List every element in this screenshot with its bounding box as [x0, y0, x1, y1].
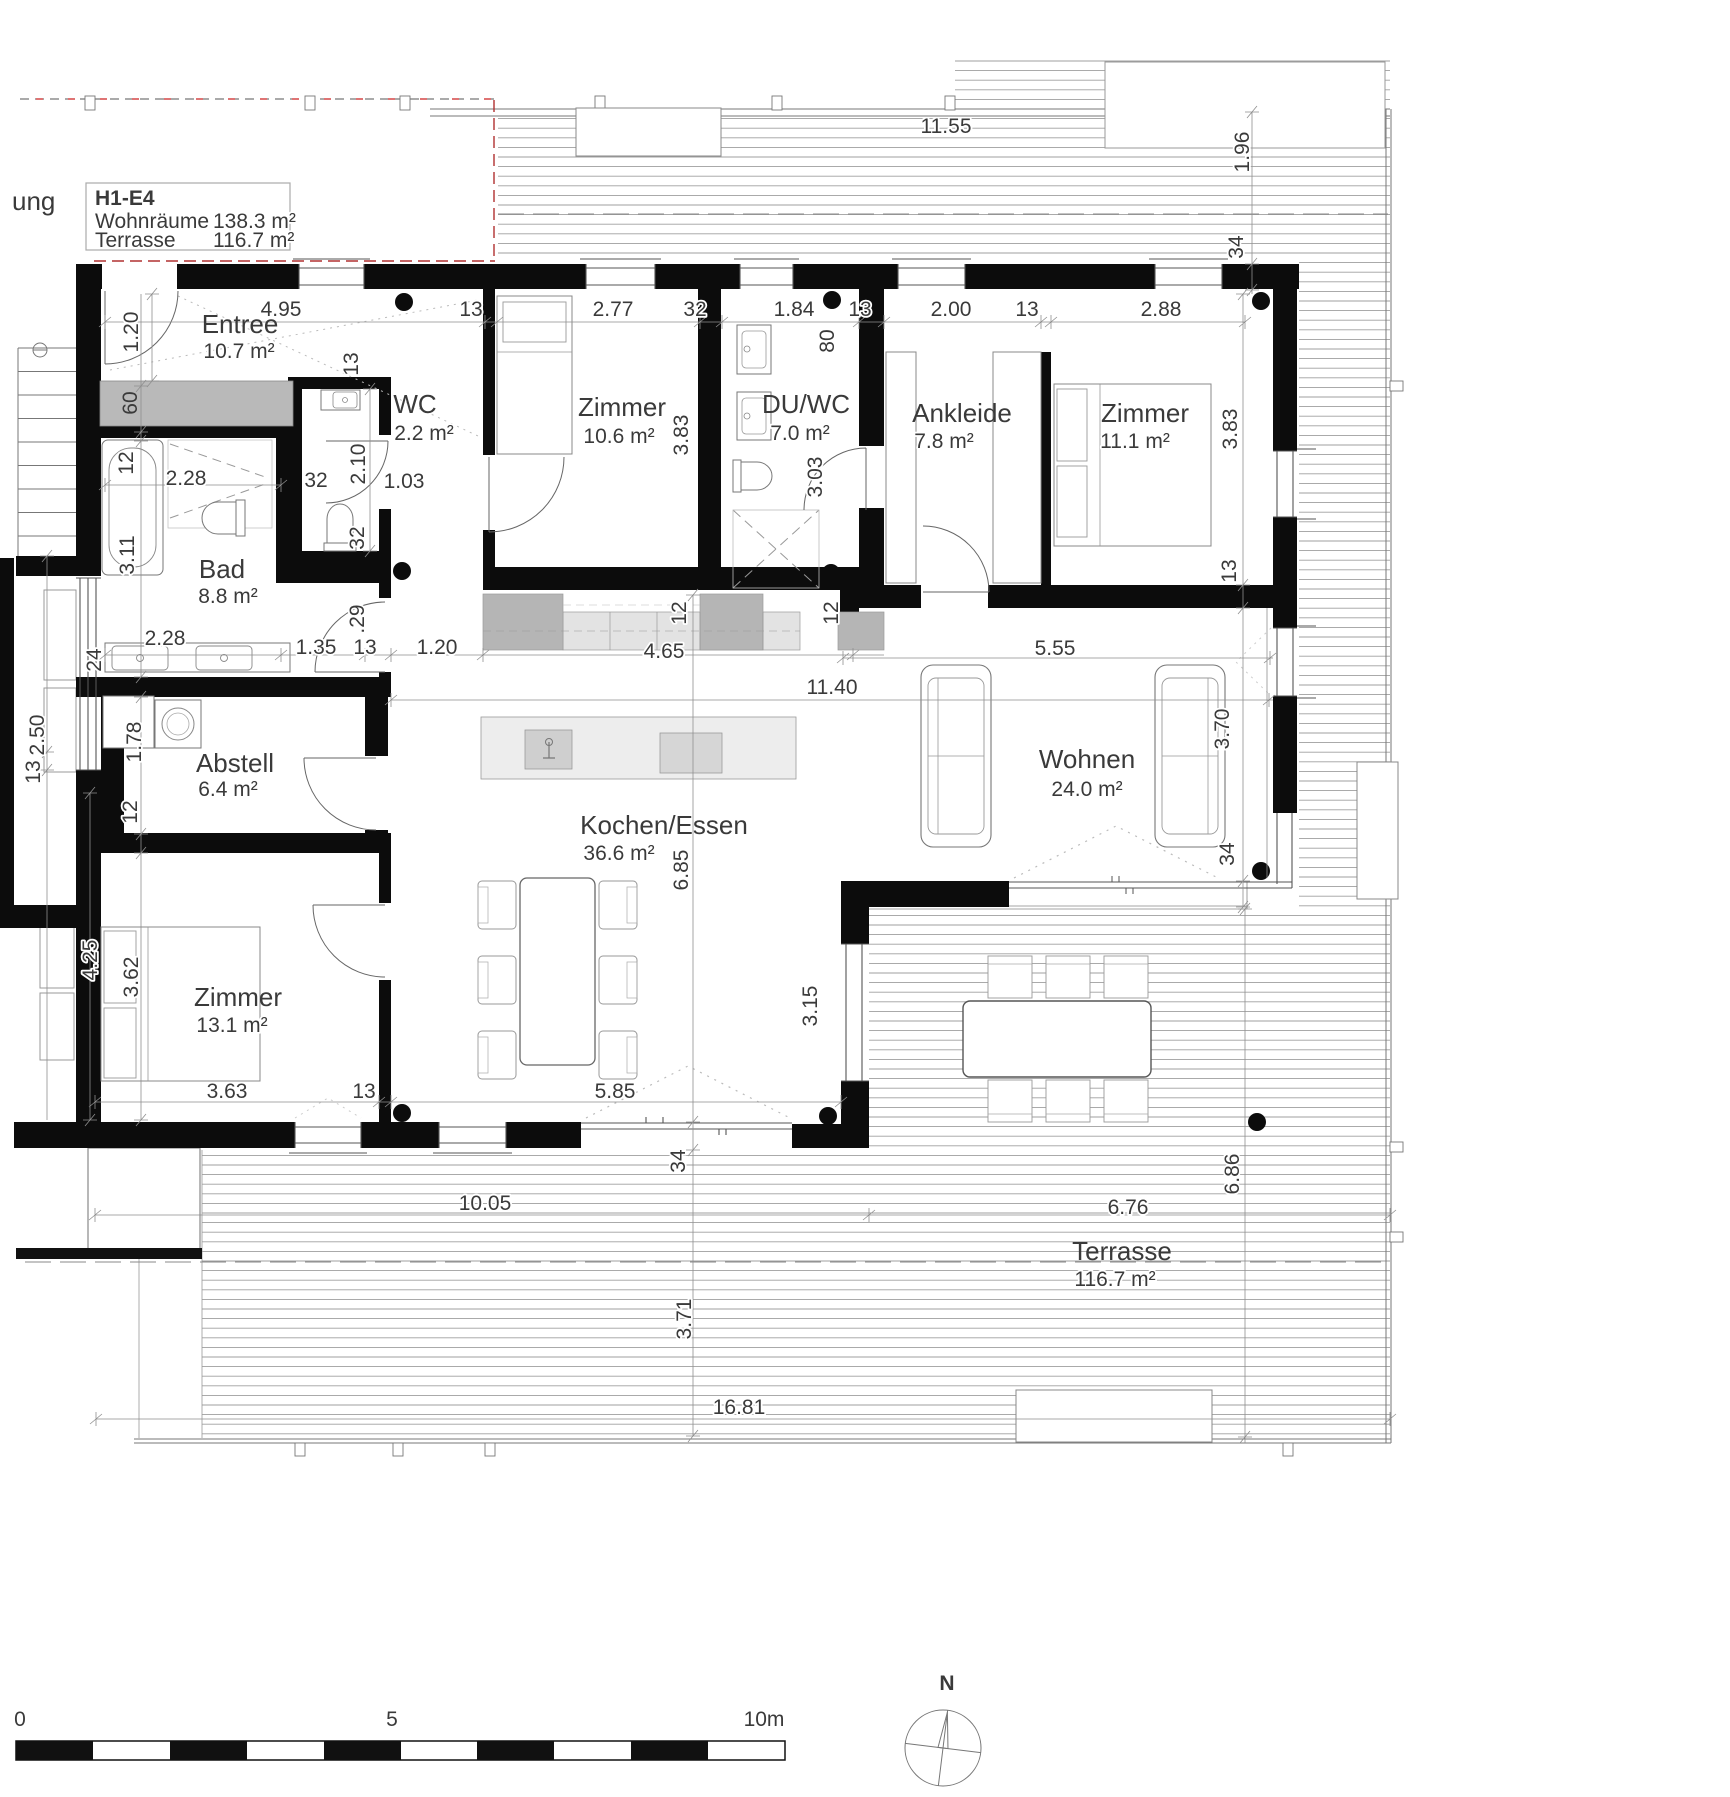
svg-text:2.77: 2.77 [593, 298, 634, 321]
svg-text:ung: ung [12, 186, 55, 216]
svg-text:Zimmer: Zimmer [1101, 398, 1189, 428]
svg-text:13: 13 [459, 298, 482, 321]
svg-text:12: 12 [820, 601, 843, 624]
svg-text:1.03: 1.03 [384, 470, 425, 493]
svg-text:3.63: 3.63 [207, 1080, 248, 1103]
svg-text:7.8 m²: 7.8 m² [914, 430, 974, 453]
svg-text:5.85: 5.85 [595, 1080, 636, 1103]
svg-text:Wohnen: Wohnen [1039, 744, 1135, 774]
svg-text:3.71: 3.71 [673, 1299, 696, 1340]
svg-text:1.84: 1.84 [774, 298, 815, 321]
svg-text:Zimmer: Zimmer [194, 982, 282, 1012]
svg-text:3.70: 3.70 [1211, 709, 1234, 750]
svg-text:34: 34 [1225, 235, 1248, 259]
svg-text:Abstell: Abstell [196, 748, 274, 778]
svg-text:2.2 m²: 2.2 m² [394, 422, 454, 445]
svg-text:32: 32 [304, 469, 327, 492]
svg-text:34: 34 [667, 1149, 690, 1173]
svg-text:12: 12 [119, 800, 142, 823]
svg-text:6.86: 6.86 [1221, 1154, 1244, 1195]
svg-text:Ankleide: Ankleide [912, 398, 1012, 428]
svg-text:24.0 m²: 24.0 m² [1051, 778, 1122, 801]
svg-text:12: 12 [668, 601, 691, 624]
svg-text:13: 13 [353, 636, 376, 659]
svg-text:12: 12 [115, 451, 138, 474]
svg-text:3.15: 3.15 [799, 986, 822, 1027]
svg-text:.29: .29 [346, 604, 369, 633]
svg-text:6.4 m²: 6.4 m² [198, 778, 258, 801]
svg-text:13: 13 [22, 760, 45, 783]
svg-text:4.25: 4.25 [79, 940, 102, 981]
svg-text:1.96: 1.96 [1231, 132, 1254, 173]
svg-text:2.88: 2.88 [1141, 298, 1182, 321]
svg-text:1.35: 1.35 [296, 636, 337, 659]
svg-text:5: 5 [386, 1708, 398, 1731]
svg-text:60: 60 [119, 391, 142, 414]
svg-text:8.8 m²: 8.8 m² [198, 585, 258, 608]
svg-text:3.62: 3.62 [120, 957, 143, 998]
svg-text:1.78: 1.78 [123, 722, 146, 763]
svg-text:11.40: 11.40 [807, 676, 858, 699]
svg-text:3.83: 3.83 [1219, 409, 1242, 450]
svg-text:10.05: 10.05 [459, 1192, 512, 1215]
svg-text:10.7 m²: 10.7 m² [203, 340, 274, 363]
svg-text:WC: WC [393, 389, 436, 419]
svg-text:2.50: 2.50 [26, 715, 49, 756]
svg-text:80: 80 [816, 329, 839, 352]
svg-text:Terrasse: Terrasse [95, 229, 176, 252]
svg-text:10m: 10m [744, 1708, 785, 1731]
svg-text:N: N [939, 1672, 954, 1695]
svg-text:3.11: 3.11 [116, 535, 139, 574]
svg-text:32: 32 [346, 526, 369, 549]
svg-text:2.00: 2.00 [931, 298, 972, 321]
svg-text:2.28: 2.28 [145, 627, 186, 650]
svg-text:1.20: 1.20 [417, 636, 458, 659]
svg-text:32: 32 [683, 298, 706, 321]
svg-text:10.6 m²: 10.6 m² [583, 425, 654, 448]
svg-text:116.7 m²: 116.7 m² [213, 229, 294, 252]
svg-text:3.03: 3.03 [804, 457, 827, 498]
svg-text:13: 13 [340, 352, 363, 375]
svg-text:2.28: 2.28 [166, 467, 207, 490]
svg-text:36.6 m²: 36.6 m² [583, 842, 654, 865]
svg-text:11.55: 11.55 [921, 115, 972, 138]
svg-text:3.83: 3.83 [670, 415, 693, 456]
svg-text:4.65: 4.65 [644, 640, 685, 663]
svg-text:6.76: 6.76 [1108, 1196, 1149, 1219]
svg-text:13: 13 [1015, 298, 1038, 321]
svg-text:34: 34 [1216, 842, 1239, 866]
svg-text:Kochen/Essen: Kochen/Essen [580, 810, 748, 840]
svg-text:13: 13 [848, 298, 871, 321]
svg-text:Bad: Bad [199, 554, 245, 584]
svg-text:13: 13 [1218, 559, 1241, 582]
svg-text:Zimmer: Zimmer [578, 392, 666, 422]
svg-text:6.85: 6.85 [670, 850, 693, 891]
svg-text:5.55: 5.55 [1035, 637, 1076, 660]
svg-text:2.10: 2.10 [347, 444, 370, 485]
svg-text:Terrasse: Terrasse [1072, 1236, 1172, 1266]
svg-text:7.0 m²: 7.0 m² [770, 422, 830, 445]
svg-text:0: 0 [14, 1708, 26, 1731]
svg-text:4.95: 4.95 [261, 298, 302, 321]
svg-text:24: 24 [83, 648, 106, 672]
svg-text:16.81: 16.81 [713, 1396, 766, 1419]
svg-text:13: 13 [352, 1080, 375, 1103]
svg-text:H1-E4: H1-E4 [95, 187, 155, 210]
svg-text:116.7 m²: 116.7 m² [1074, 1268, 1155, 1291]
svg-text:13.1 m²: 13.1 m² [196, 1014, 267, 1037]
svg-text:1.20: 1.20 [120, 312, 143, 353]
svg-text:11.1 m²: 11.1 m² [1100, 430, 1170, 453]
svg-text:DU/WC: DU/WC [762, 389, 850, 419]
